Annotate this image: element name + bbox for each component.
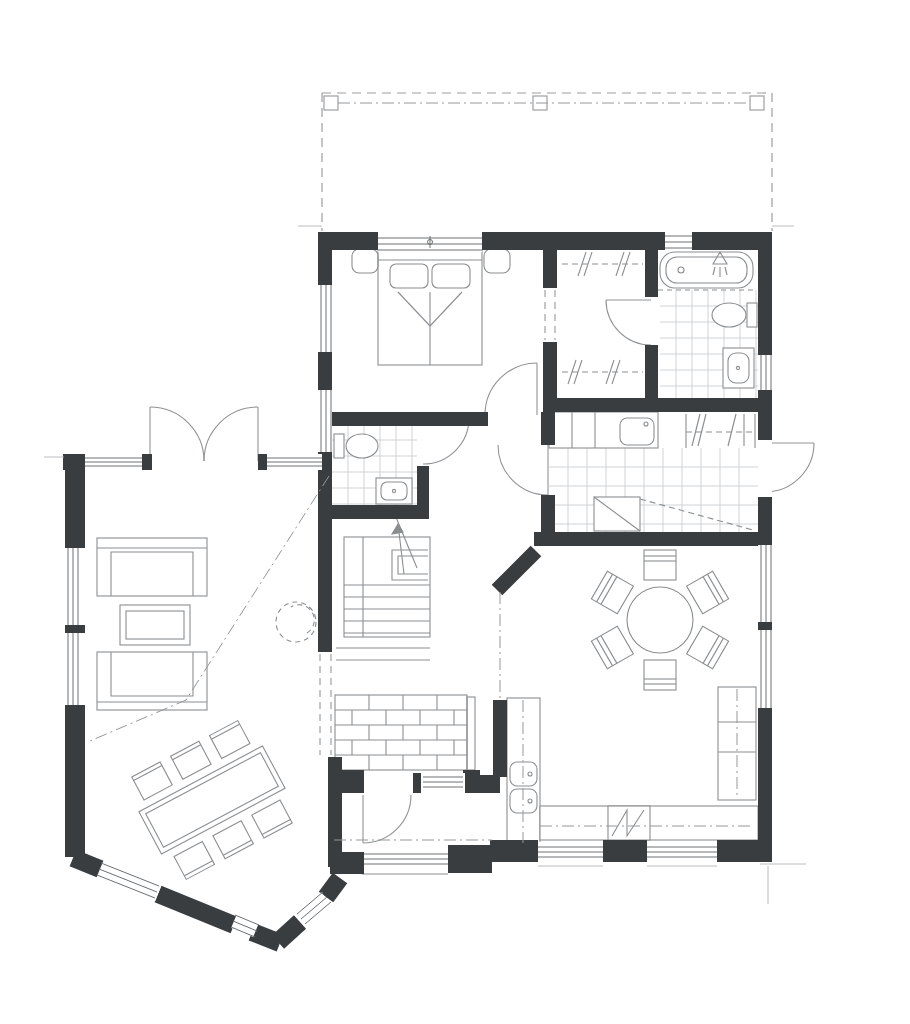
wall-bedroom-bottom bbox=[332, 412, 488, 426]
roof-valley-line bbox=[90, 476, 329, 741]
dining-chair bbox=[687, 626, 729, 669]
table-chair-back bbox=[184, 861, 212, 876]
table-chair-back bbox=[262, 820, 290, 835]
wall-living-top-pier bbox=[142, 454, 152, 470]
entry-door-arc bbox=[765, 443, 814, 492]
wall-living-top bbox=[322, 454, 332, 470]
floor-plan-svg bbox=[0, 0, 910, 1024]
french-door-left-arc bbox=[150, 407, 204, 461]
bed-pillow-right bbox=[432, 264, 470, 288]
sofa-bottom bbox=[97, 652, 207, 710]
wall-right-main bbox=[758, 232, 772, 355]
table-chair bbox=[174, 841, 214, 879]
wall-hall-entrance bbox=[541, 495, 555, 532]
wall-bay-sw bbox=[73, 858, 100, 869]
wall-right-main bbox=[758, 497, 772, 545]
wall-right-mullion bbox=[758, 622, 772, 630]
wall-left-main bbox=[318, 232, 332, 285]
window-mask bbox=[758, 545, 772, 622]
fireplace-brick-mass bbox=[335, 695, 467, 770]
window-mask bbox=[364, 850, 448, 870]
table-chair-back bbox=[134, 765, 162, 780]
toilet-tank-wc bbox=[334, 434, 344, 458]
wall-interior-horizontal bbox=[543, 398, 758, 412]
window-mask bbox=[758, 355, 772, 390]
toilet-bowl-wc bbox=[346, 434, 378, 458]
pergola-outline bbox=[322, 93, 772, 231]
entry-wardrobe-hash bbox=[728, 414, 736, 446]
window-mask bbox=[421, 773, 465, 793]
entry-door-opening bbox=[758, 440, 772, 497]
coffee-table-inner bbox=[126, 611, 184, 639]
wall-bedroom-dressing bbox=[543, 250, 557, 288]
wall-living-left bbox=[65, 705, 85, 857]
dining-chair bbox=[644, 550, 676, 580]
bath-door-arc bbox=[606, 300, 651, 345]
round-dining-table bbox=[627, 587, 693, 653]
fireplace-edge bbox=[467, 697, 475, 770]
dining-chair bbox=[644, 660, 676, 690]
wall-vestibule-front bbox=[448, 845, 492, 873]
wall-wc-right bbox=[417, 466, 429, 505]
wall-vestibule-front bbox=[330, 852, 364, 874]
window-mask bbox=[758, 630, 772, 708]
table-chair bbox=[213, 821, 253, 859]
dining-chair bbox=[687, 571, 729, 614]
wall-bottom bbox=[717, 840, 760, 862]
nightstand-left bbox=[352, 249, 378, 273]
wall-dressing-bath bbox=[645, 250, 658, 297]
sofa-top bbox=[97, 538, 207, 596]
window-mask bbox=[318, 390, 332, 452]
wall-bay-sw bbox=[158, 894, 234, 925]
sofa-bottom-seat bbox=[111, 652, 193, 696]
wall-top bbox=[482, 232, 665, 250]
table-chair-back bbox=[173, 745, 201, 760]
table-chair bbox=[209, 721, 249, 759]
wall-bay-se bbox=[278, 922, 300, 942]
entrance-tile-grid bbox=[549, 448, 758, 532]
rect-dining-table bbox=[139, 746, 285, 854]
toilet-bowl-bath bbox=[712, 303, 746, 327]
bed-pillow-left bbox=[390, 264, 428, 288]
wall-living-left-mullion bbox=[65, 625, 85, 633]
wall-left-main bbox=[318, 352, 332, 390]
openings-dashed bbox=[320, 290, 555, 755]
wall-kitchen-west bbox=[493, 700, 507, 777]
pergola-post bbox=[750, 96, 764, 110]
pergola-post bbox=[324, 96, 338, 110]
table-chair bbox=[252, 800, 292, 838]
bed-fold-left bbox=[398, 292, 430, 326]
brick-outline bbox=[335, 695, 467, 770]
garden-door-arc bbox=[363, 795, 411, 843]
wall-kitchen-turn bbox=[480, 775, 500, 793]
utility-counter bbox=[549, 412, 658, 448]
wall-right-main bbox=[758, 708, 772, 862]
floor-plan bbox=[0, 0, 910, 1024]
wall-garden-pier bbox=[463, 770, 480, 793]
wall-living-top bbox=[63, 454, 85, 470]
sofa-top-seat bbox=[111, 552, 193, 596]
toilet-tank-bath bbox=[747, 303, 757, 327]
wall-dining-top bbox=[534, 532, 758, 546]
wall-dressing-bath bbox=[645, 345, 658, 398]
table-chair-back bbox=[211, 724, 239, 739]
table-chair bbox=[132, 762, 172, 800]
door-swings bbox=[150, 300, 814, 843]
wall-garden-pier bbox=[330, 770, 364, 793]
stair-outline bbox=[344, 537, 430, 637]
attic-hatch-dashed bbox=[640, 499, 753, 530]
wall-right-main bbox=[758, 390, 772, 440]
hall-door-arc bbox=[498, 445, 548, 495]
table-chair bbox=[171, 741, 211, 779]
wall-bottom bbox=[490, 840, 538, 862]
wall-bay-se bbox=[326, 878, 340, 897]
bedroom-door-arc bbox=[485, 363, 537, 415]
rect-dining-table-inner bbox=[146, 753, 279, 848]
bed-fold-right bbox=[430, 292, 462, 326]
window-mask bbox=[318, 285, 332, 352]
stove-circle-dashed bbox=[276, 602, 316, 642]
window-mask bbox=[665, 228, 692, 250]
wall-bottom bbox=[603, 840, 647, 862]
french-door-right-arc bbox=[204, 407, 258, 461]
table-chair-back bbox=[223, 840, 251, 855]
dining-chair bbox=[591, 571, 633, 614]
dining-chair bbox=[591, 626, 633, 669]
stair-rail-outer bbox=[392, 550, 428, 580]
wall-wc-bottom bbox=[318, 505, 429, 519]
nightstand-right bbox=[484, 249, 510, 273]
wall-living-top-pier bbox=[258, 454, 267, 470]
wall-living-left bbox=[65, 470, 85, 548]
wall-hall-entrance bbox=[541, 412, 555, 445]
wall-dining-chamfer bbox=[497, 551, 536, 590]
